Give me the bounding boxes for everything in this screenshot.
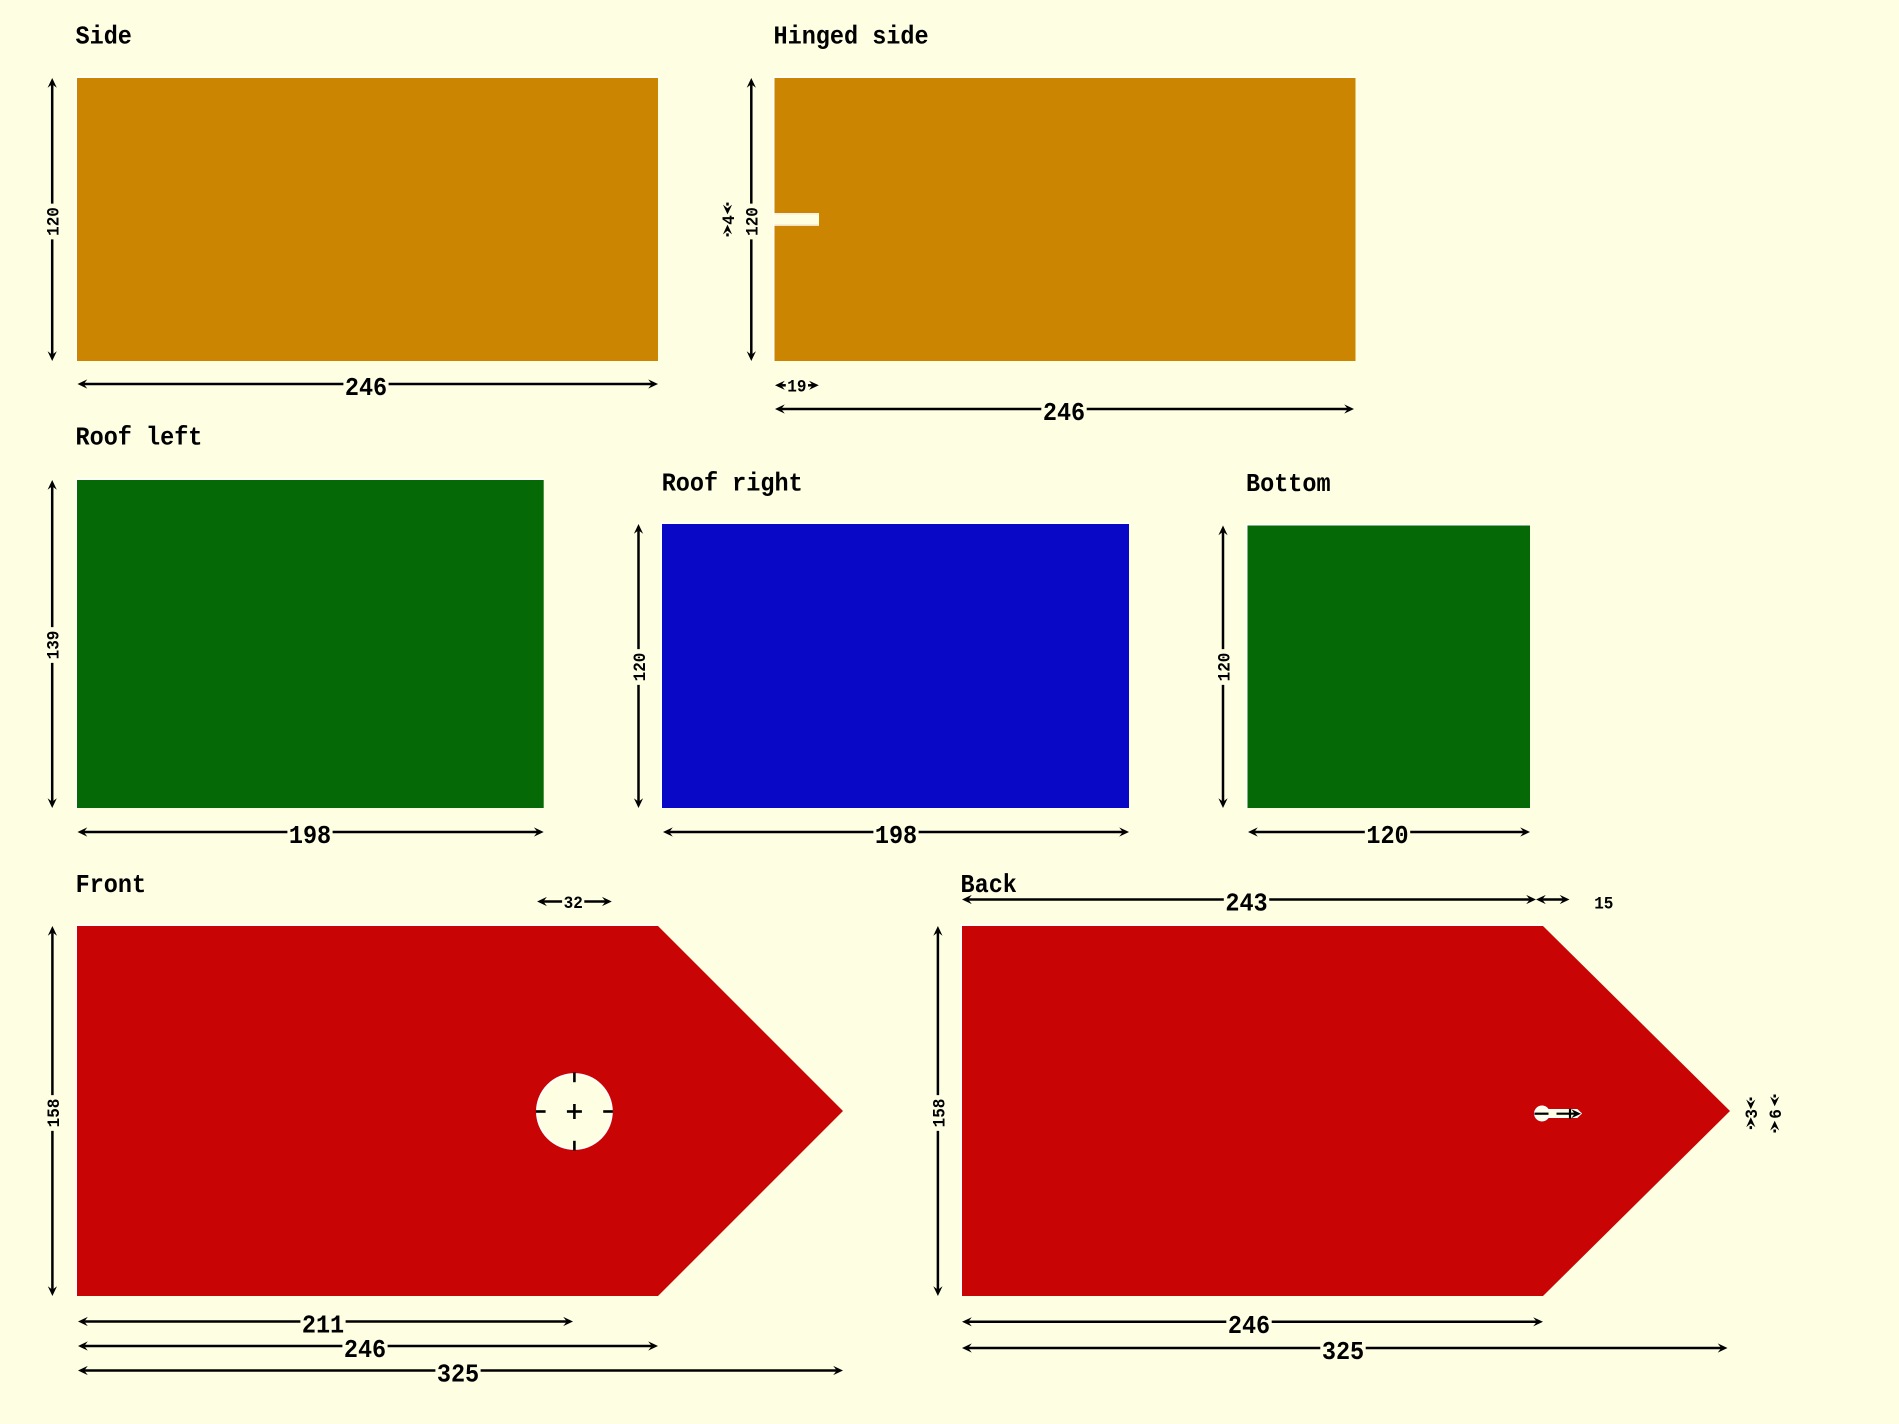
svg-text:246: 246 [1043, 398, 1085, 428]
svg-text:32: 32 [564, 894, 583, 914]
svg-text:246: 246 [345, 373, 387, 403]
svg-text:Roof left: Roof left [76, 423, 203, 453]
svg-text:3: 3 [1743, 1109, 1763, 1119]
svg-text:4: 4 [720, 215, 740, 225]
svg-text:325: 325 [1322, 1337, 1364, 1367]
svg-text:198: 198 [289, 821, 331, 851]
svg-text:Roof right: Roof right [662, 469, 803, 499]
svg-text:120: 120 [1215, 653, 1235, 682]
svg-text:158: 158 [45, 1099, 65, 1128]
svg-text:Bottom: Bottom [1246, 469, 1331, 499]
svg-text:211: 211 [302, 1311, 344, 1341]
svg-text:325: 325 [437, 1360, 479, 1390]
svg-text:15: 15 [1594, 894, 1613, 914]
svg-text:246: 246 [1228, 1311, 1270, 1341]
svg-text:198: 198 [875, 821, 917, 851]
svg-text:Hinged side: Hinged side [774, 22, 929, 52]
svg-text:120: 120 [45, 207, 65, 236]
svg-text:246: 246 [344, 1335, 386, 1365]
svg-text:Back: Back [961, 870, 1017, 900]
svg-text:120: 120 [1366, 821, 1408, 851]
svg-text:6: 6 [1767, 1109, 1787, 1119]
svg-text:Side: Side [76, 22, 132, 52]
svg-text:120: 120 [631, 653, 651, 682]
svg-text:243: 243 [1225, 889, 1267, 919]
svg-text:Front: Front [76, 870, 147, 900]
svg-text:139: 139 [45, 631, 65, 660]
svg-text:120: 120 [744, 207, 764, 236]
svg-text:158: 158 [930, 1099, 950, 1128]
svg-text:19: 19 [787, 378, 806, 398]
